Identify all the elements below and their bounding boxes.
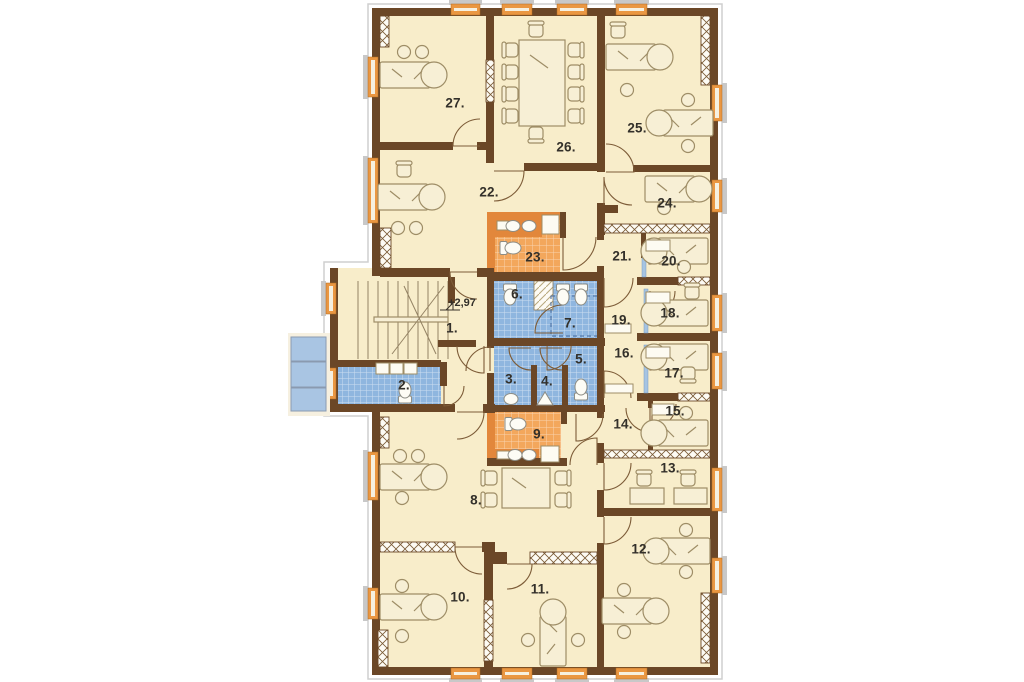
exterior-elements — [288, 333, 330, 416]
floor-plan-drawing — [0, 0, 1024, 682]
floor-plan: 1.2.3.4.5.6.7.8.9.10.11.12.13.14.15.16.1… — [0, 0, 1024, 682]
